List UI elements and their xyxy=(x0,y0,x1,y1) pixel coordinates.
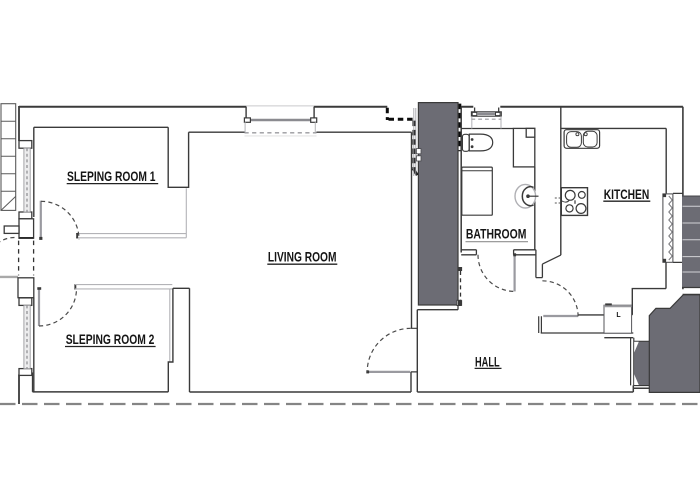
svg-text:SLEPING ROOM 1: SLEPING ROOM 1 xyxy=(67,168,156,184)
svg-text:L: L xyxy=(616,312,621,319)
svg-text:HALL: HALL xyxy=(475,354,500,370)
svg-text:LIVING ROOM: LIVING ROOM xyxy=(268,249,337,265)
svg-text:KITCHEN: KITCHEN xyxy=(604,186,650,202)
svg-text:BATHROOM: BATHROOM xyxy=(466,226,527,242)
svg-text:SLEPING ROOM 2: SLEPING ROOM 2 xyxy=(66,331,155,347)
